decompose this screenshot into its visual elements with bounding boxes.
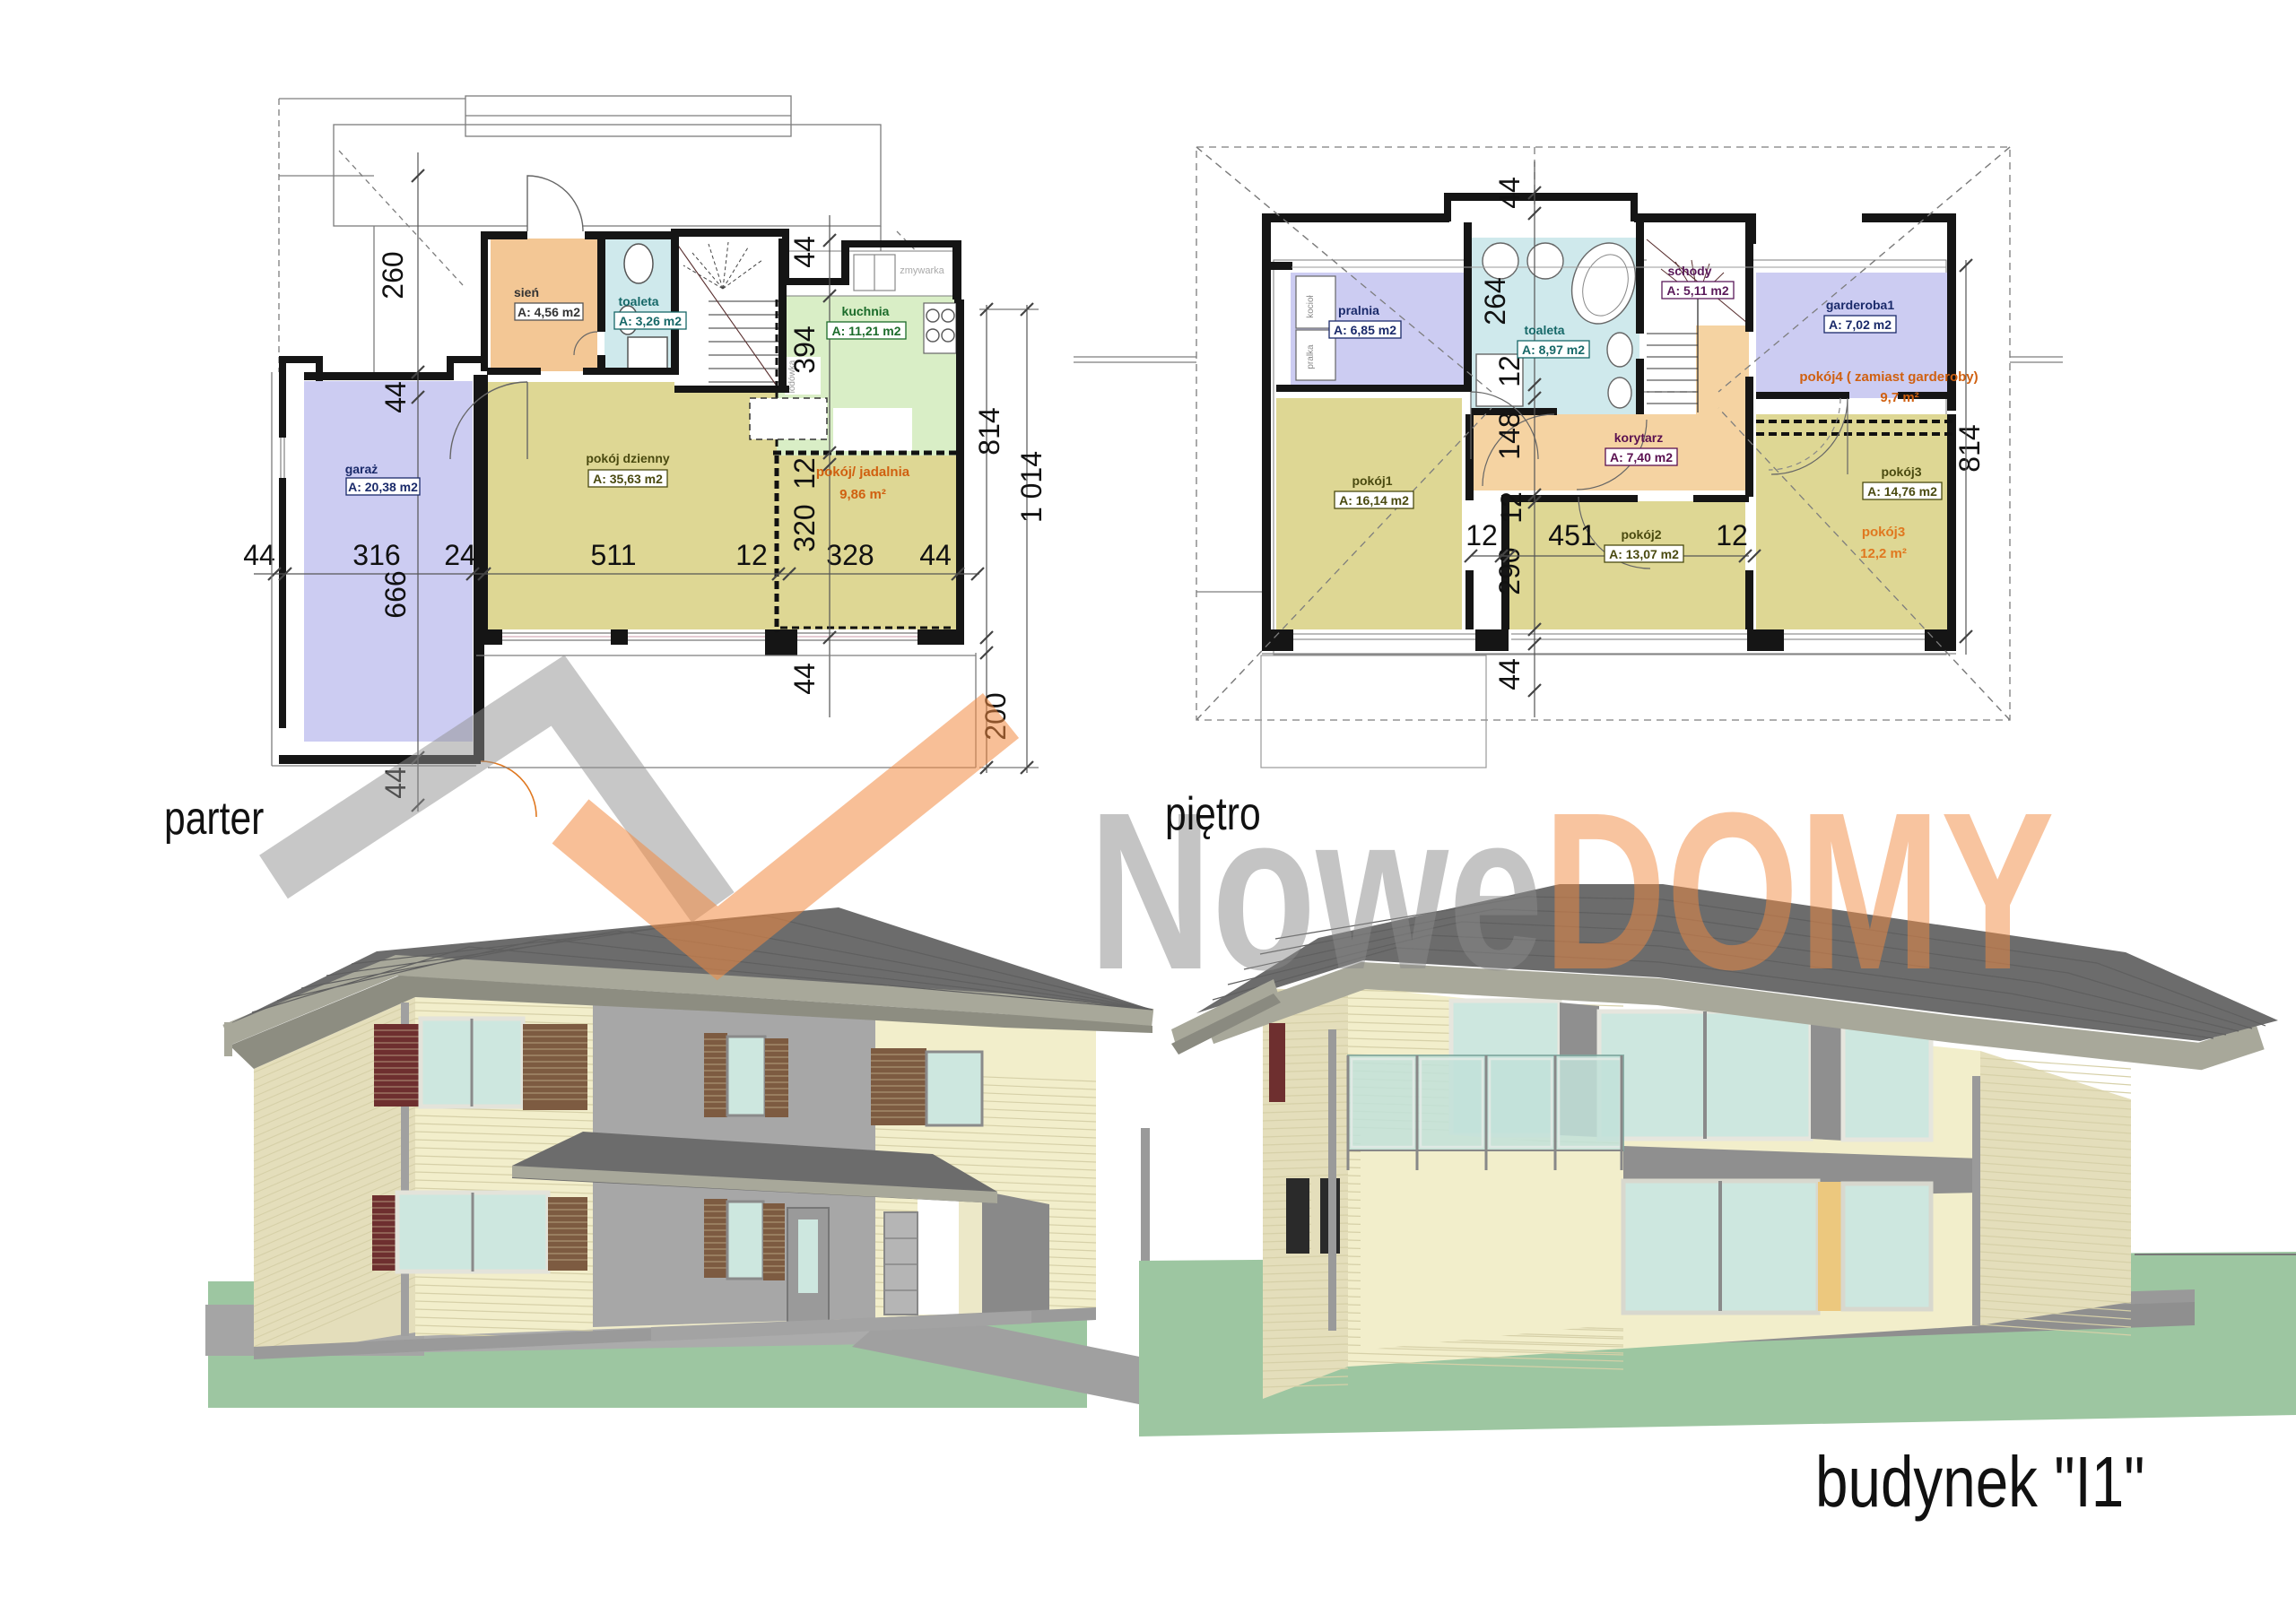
svg-text:12: 12 xyxy=(1493,355,1526,387)
svg-text:12: 12 xyxy=(1716,519,1748,551)
svg-text:A: 7,02 m2: A: 7,02 m2 xyxy=(1829,317,1892,332)
svg-text:44: 44 xyxy=(919,539,952,571)
svg-text:A: 13,07 m2: A: 13,07 m2 xyxy=(1609,547,1679,561)
svg-text:zmywarka: zmywarka xyxy=(900,265,944,276)
svg-text:814: 814 xyxy=(1953,424,1986,472)
svg-text:148: 148 xyxy=(1493,412,1526,459)
svg-text:piętro: piętro xyxy=(1165,788,1261,840)
svg-text:toaleta: toaleta xyxy=(1524,323,1564,337)
svg-text:44: 44 xyxy=(1493,177,1526,209)
svg-text:12: 12 xyxy=(735,539,768,571)
svg-text:pokój4 ( zamiast garderoby): pokój4 ( zamiast garderoby) xyxy=(1799,369,1978,385)
svg-text:A: 35,63 m2: A: 35,63 m2 xyxy=(593,472,663,486)
svg-text:12,2 m²: 12,2 m² xyxy=(1860,546,1907,561)
svg-text:parter: parter xyxy=(164,793,265,845)
svg-text:511: 511 xyxy=(590,539,636,571)
svg-text:A: 8,97 m2: A: 8,97 m2 xyxy=(1522,343,1585,357)
svg-text:A: 3,26 m2: A: 3,26 m2 xyxy=(619,314,682,328)
svg-text:schody: schody xyxy=(1667,264,1711,278)
svg-text:814: 814 xyxy=(973,407,1005,455)
svg-text:12: 12 xyxy=(1465,519,1498,551)
svg-text:pokój1: pokój1 xyxy=(1352,473,1392,488)
svg-text:9,7 m²: 9,7 m² xyxy=(1880,390,1918,405)
svg-text:12: 12 xyxy=(1495,491,1527,524)
svg-text:320: 320 xyxy=(788,504,821,551)
svg-text:pokój/ jadalnia: pokój/ jadalnia xyxy=(816,464,910,480)
svg-text:pokój dzienny: pokój dzienny xyxy=(586,451,670,465)
svg-text:sień: sień xyxy=(514,285,539,299)
svg-text:44: 44 xyxy=(788,236,821,268)
svg-text:A: 4,56 m2: A: 4,56 m2 xyxy=(517,305,580,319)
svg-text:garaż: garaż xyxy=(345,462,378,476)
svg-text:kocioł: kocioł xyxy=(1306,294,1316,317)
svg-text:A: 7,40 m2: A: 7,40 m2 xyxy=(1610,450,1673,464)
svg-text:44: 44 xyxy=(788,663,821,695)
svg-text:316: 316 xyxy=(352,539,400,571)
svg-text:24: 24 xyxy=(444,539,476,571)
svg-text:44: 44 xyxy=(1493,658,1526,690)
svg-text:korytarz: korytarz xyxy=(1614,430,1663,445)
svg-text:264: 264 xyxy=(1479,277,1511,325)
svg-text:44: 44 xyxy=(243,539,275,571)
svg-text:44: 44 xyxy=(379,381,412,413)
svg-text:budynek "I1": budynek "I1" xyxy=(1815,1442,2144,1523)
svg-text:pralnia: pralnia xyxy=(1338,303,1379,317)
svg-text:260: 260 xyxy=(377,251,409,299)
svg-text:9,86 m²: 9,86 m² xyxy=(839,487,886,502)
svg-text:kuchnia: kuchnia xyxy=(842,304,890,318)
svg-text:666: 666 xyxy=(379,570,412,618)
svg-text:toaleta: toaleta xyxy=(618,294,658,308)
svg-text:A: 14,76 m2: A: 14,76 m2 xyxy=(1867,484,1937,499)
svg-text:pokój2: pokój2 xyxy=(1621,527,1661,542)
svg-text:394: 394 xyxy=(788,325,821,373)
svg-text:290: 290 xyxy=(1493,547,1526,595)
svg-text:pralka: pralka xyxy=(1306,344,1316,369)
svg-text:pokój3: pokój3 xyxy=(1881,464,1921,479)
svg-text:328: 328 xyxy=(826,539,874,571)
svg-text:A: 5,11 m2: A: 5,11 m2 xyxy=(1666,283,1728,298)
svg-text:A: 16,14 m2: A: 16,14 m2 xyxy=(1339,493,1409,508)
svg-text:A: 11,21 m2: A: 11,21 m2 xyxy=(831,324,900,338)
svg-text:pokój3: pokój3 xyxy=(1862,525,1905,540)
svg-text:451: 451 xyxy=(1548,519,1596,551)
svg-text:1 014: 1 014 xyxy=(1015,451,1048,523)
svg-text:garderoba1: garderoba1 xyxy=(1826,298,1894,312)
svg-text:A: 20,38 m2: A: 20,38 m2 xyxy=(348,480,418,494)
svg-text:A: 6,85 m2: A: 6,85 m2 xyxy=(1334,323,1396,337)
